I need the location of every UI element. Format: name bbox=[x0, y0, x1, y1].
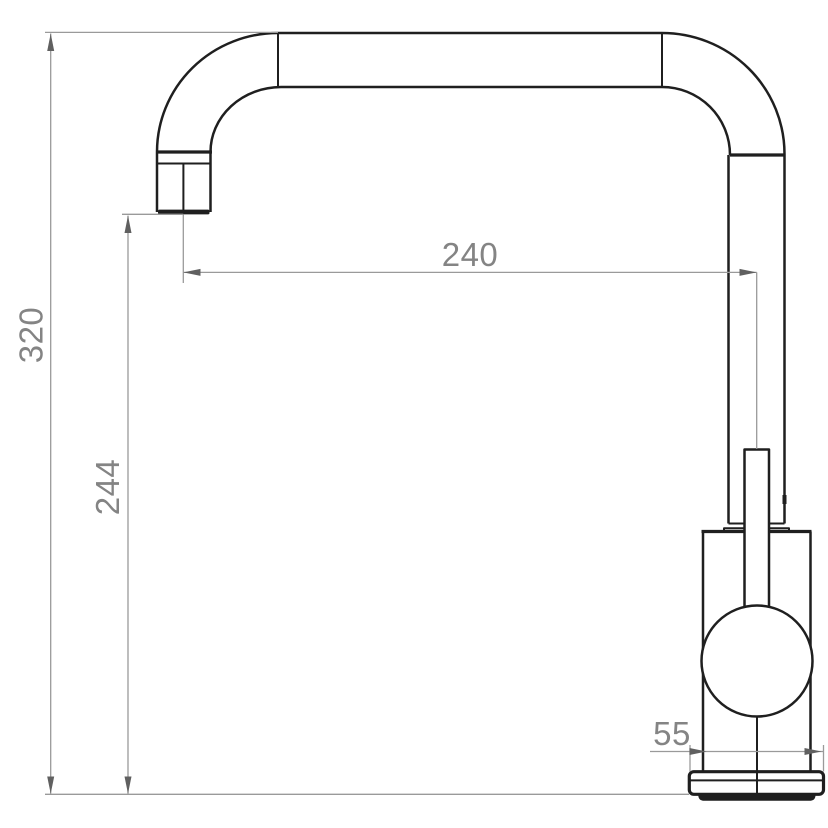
tap-dimension-drawing: 320 244 240 55 bbox=[0, 0, 828, 828]
dimension-label-320: 320 bbox=[13, 307, 50, 364]
spout-left-outer-bend bbox=[157, 33, 278, 152]
dimension-base-width: 55 bbox=[650, 715, 824, 772]
arrow-down-icon bbox=[47, 777, 54, 794]
base-gasket bbox=[698, 795, 815, 801]
dimension-spout-reach: 240 bbox=[183, 214, 756, 449]
dimension-overall-height: 320 bbox=[13, 32, 689, 794]
handle-ball bbox=[702, 606, 813, 717]
arrow-up-icon bbox=[47, 34, 54, 52]
spout-right-outer-bend bbox=[662, 33, 785, 154]
spout-right-inner-bend bbox=[662, 87, 730, 155]
handle-lever bbox=[745, 450, 770, 610]
faucet-outline bbox=[156, 33, 824, 801]
neck-detail-tick bbox=[783, 495, 787, 504]
dimension-label-55: 55 bbox=[653, 715, 691, 752]
arrow-down-icon bbox=[125, 777, 132, 794]
arrow-up-icon bbox=[125, 216, 132, 233]
dimension-spout-outlet-height: 244 bbox=[89, 214, 183, 794]
arrow-right-icon bbox=[805, 748, 822, 755]
dimension-label-244: 244 bbox=[89, 459, 126, 516]
technical-drawing-canvas: 320 244 240 55 bbox=[0, 0, 828, 828]
arrow-right-icon bbox=[740, 269, 757, 276]
spout-tube bbox=[157, 33, 785, 155]
arrow-left-icon bbox=[183, 269, 200, 276]
dimension-label-240: 240 bbox=[442, 236, 499, 273]
spout-outlet bbox=[156, 152, 212, 214]
spout-left-inner-bend bbox=[211, 87, 282, 152]
